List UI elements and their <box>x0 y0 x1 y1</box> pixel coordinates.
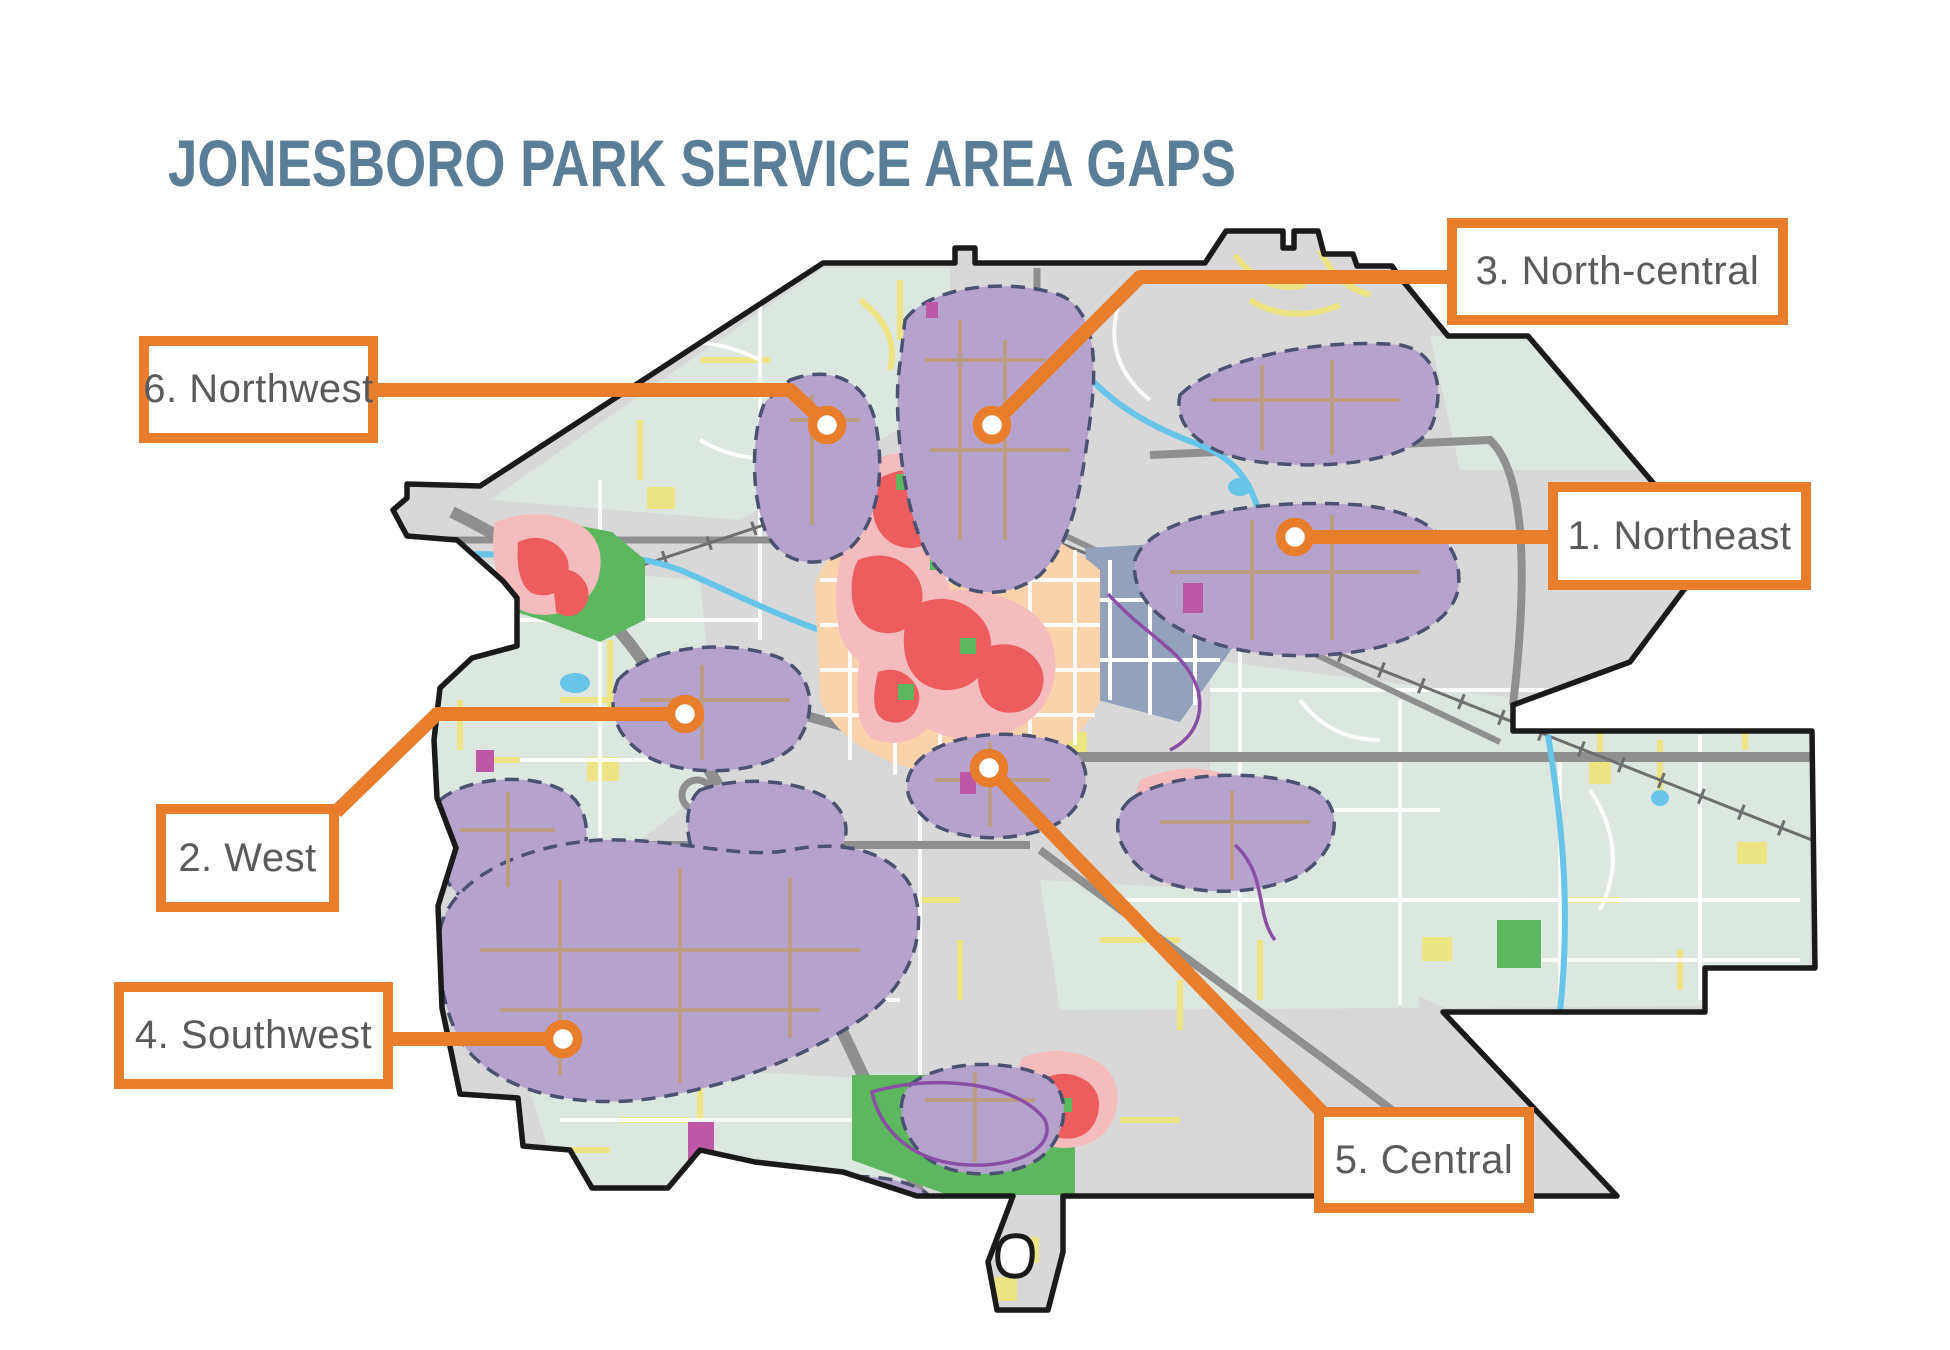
callout-label: 6. Northwest <box>143 367 374 412</box>
gap-marker-central <box>975 754 1004 783</box>
leader-line-west <box>336 714 685 812</box>
callout-box-southwest: 4. Southwest <box>114 982 393 1089</box>
gap-marker-north-central <box>978 411 1007 440</box>
infographic-canvas: JONESBORO PARK SERVICE AREA GAPS 1. Nort… <box>0 0 1950 1350</box>
callout-box-north-central: 3. North-central <box>1447 218 1788 325</box>
callout-label: 2. West <box>178 836 316 881</box>
leader-line-north-central <box>998 277 1447 419</box>
gap-marker-west <box>671 700 700 729</box>
callout-label: 3. North-central <box>1476 249 1760 294</box>
leader-line-central <box>996 775 1322 1112</box>
gap-marker-northeast <box>1281 523 1310 552</box>
callout-box-northeast: 1. Northeast <box>1548 482 1811 590</box>
gap-marker-northwest <box>813 411 842 440</box>
callout-label: 4. Southwest <box>135 1013 372 1058</box>
callout-overlay <box>0 0 1950 1350</box>
callout-box-northwest: 6. Northwest <box>139 336 378 443</box>
callout-box-central: 5. Central <box>1314 1107 1534 1213</box>
gap-marker-southwest <box>549 1025 578 1054</box>
callout-box-west: 2. West <box>156 804 339 912</box>
callout-label: 1. Northeast <box>1568 514 1792 559</box>
leader-line-northwest <box>377 390 827 425</box>
page-title: JONESBORO PARK SERVICE AREA GAPS <box>168 130 1236 196</box>
callout-label: 5. Central <box>1335 1138 1513 1183</box>
